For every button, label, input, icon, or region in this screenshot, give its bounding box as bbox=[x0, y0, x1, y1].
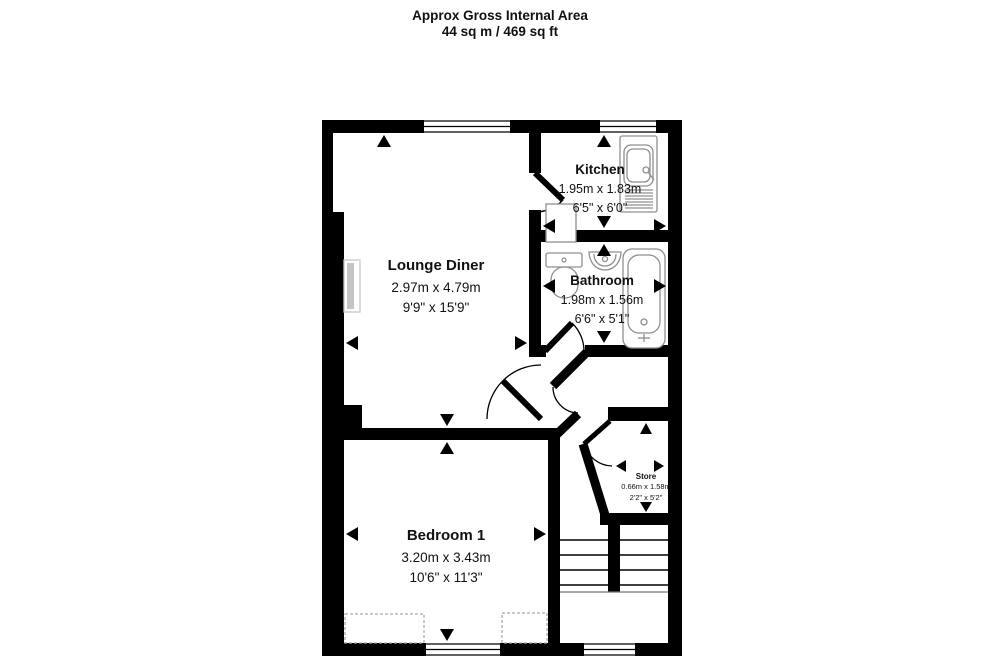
stairs-window bbox=[584, 642, 635, 657]
store-metric: 0.66m x 1.58m bbox=[610, 482, 682, 493]
store-arrow-up bbox=[640, 423, 652, 434]
room-label-lounge: Lounge Diner 2.97m x 4.79m 9'9" x 15'9" bbox=[336, 255, 536, 318]
bedroom-arrow-down bbox=[440, 629, 454, 641]
kitchen-arrow-down bbox=[597, 216, 611, 228]
lounge-door bbox=[487, 365, 541, 419]
kitchen-imperial: 6'5" x 6'0" bbox=[531, 199, 669, 218]
lounge-arrow-left bbox=[346, 336, 358, 350]
kitchen-arrow-up bbox=[597, 135, 611, 147]
lounge-metric: 2.97m x 4.79m bbox=[336, 278, 536, 298]
kitchen-name: Kitchen bbox=[531, 160, 669, 180]
bathroom-imperial: 6'6" x 5'1" bbox=[533, 310, 671, 329]
bedroom-name: Bedroom 1 bbox=[346, 525, 546, 548]
bedroom-window bbox=[426, 642, 500, 657]
bathroom-name: Bathroom bbox=[533, 271, 671, 291]
bathroom-arrow-up bbox=[597, 244, 611, 256]
room-label-bathroom: Bathroom 1.98m x 1.56m 6'6" x 5'1" bbox=[533, 271, 671, 329]
bedroom-arrow-up bbox=[440, 442, 454, 454]
room-label-store: Store 0.66m x 1.58m 2'2" x 5'2" bbox=[610, 471, 682, 503]
lounge-arrow-up bbox=[377, 135, 391, 147]
wardrobe-left bbox=[345, 614, 424, 643]
lounge-arrow-down bbox=[440, 414, 454, 426]
kitchen-metric: 1.95m x 1.83m bbox=[531, 180, 669, 199]
lounge-arrow-right bbox=[515, 336, 527, 350]
floor-plan-page: Approx Gross Internal Area 44 sq m / 469… bbox=[0, 0, 1000, 666]
store-name: Store bbox=[610, 471, 682, 482]
bedroom-door bbox=[553, 387, 578, 413]
lounge-imperial: 9'9" x 15'9" bbox=[336, 298, 536, 318]
bathroom-metric: 1.98m x 1.56m bbox=[533, 291, 671, 310]
room-label-kitchen: Kitchen 1.95m x 1.83m 6'5" x 6'0" bbox=[531, 160, 669, 218]
store-imperial: 2'2" x 5'2" bbox=[610, 493, 682, 504]
bedroom-metric: 3.20m x 3.43m bbox=[346, 548, 546, 568]
store-arrow-down bbox=[640, 502, 652, 512]
wardrobe-right bbox=[502, 613, 547, 643]
kitchen-window bbox=[600, 119, 656, 134]
bathroom-arrow-down bbox=[597, 331, 611, 343]
lounge-name: Lounge Diner bbox=[336, 255, 536, 278]
room-label-bedroom: Bedroom 1 3.20m x 3.43m 10'6" x 11'3" bbox=[346, 525, 546, 588]
lounge-window bbox=[424, 119, 510, 134]
bedroom-imperial: 10'6" x 11'3" bbox=[346, 568, 546, 588]
